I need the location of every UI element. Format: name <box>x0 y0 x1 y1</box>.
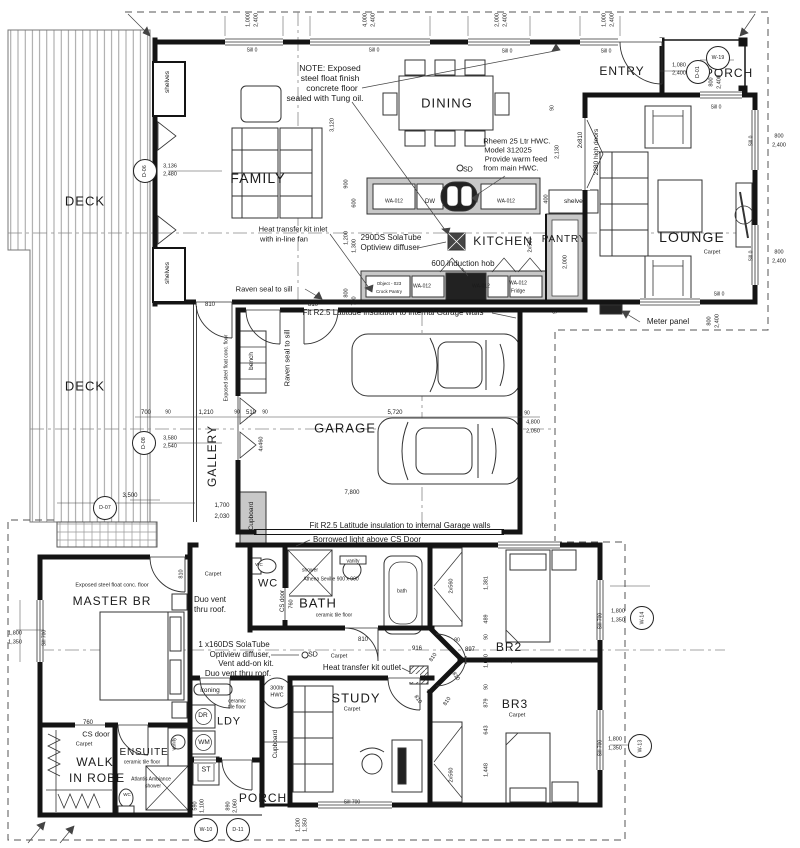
annotation-label: WA-012 <box>413 285 431 290</box>
tag-w-10: W-10 <box>194 818 218 842</box>
annotation-label: 3,500 <box>122 493 137 499</box>
room-ldy: LDY <box>217 717 241 728</box>
annotation-label: 90 <box>524 412 530 417</box>
annotation-label: 2,400 <box>610 13 616 27</box>
note-heat-inlet: Heat transfer kit inlet <box>259 225 328 233</box>
note-solatube: 290DS SolaTube <box>361 234 422 242</box>
annotation-label: shelves <box>165 71 172 93</box>
annotation-label: vanity <box>346 560 359 565</box>
annotation-label: thru roof. <box>194 606 226 614</box>
room-deck-lower: DECK <box>65 380 105 393</box>
tag-w-19: W-19 <box>706 46 730 70</box>
room-kitchen: KITCHEN <box>473 235 532 247</box>
annotation-label: ceramic tile floor <box>124 761 160 766</box>
note-solatube-2: 1 x160DS SolaTube <box>198 641 269 649</box>
annotation-label: Carpet <box>331 654 348 660</box>
annotation-label: steel float finish <box>301 74 360 83</box>
annotation-label: 4,000 <box>363 13 369 27</box>
annotation-label: Optiview diffuser, <box>210 651 271 659</box>
room-walk-in-robe-2: IN ROBE <box>69 772 125 784</box>
note-heat-outlet: Heat transfer kit outlet <box>323 664 401 672</box>
note-hob: 600 induction hob <box>431 260 494 268</box>
annotation-label: CS door <box>82 730 110 738</box>
annotation-label: WM <box>198 740 210 747</box>
annotation-label: bath <box>397 590 407 595</box>
annotation-label: 2,400 <box>503 13 509 27</box>
annotation-label: 900 <box>344 179 350 188</box>
annotation-label: sealed with Tung oil. <box>286 94 363 103</box>
annotation-label: Cupboard <box>273 730 280 759</box>
room-wc: WC <box>258 579 278 590</box>
annotation-label: 1,800 <box>611 609 625 615</box>
annotation-label: 590 <box>193 801 199 810</box>
room-walk-in-robe: WALK <box>76 756 113 768</box>
annotation-label: 897 <box>465 647 475 653</box>
annotation-label: 800 <box>344 288 350 297</box>
annotation-label: shower <box>145 785 161 790</box>
annotation-label: 2,400 <box>715 314 721 328</box>
annotation-label: shelves <box>165 262 172 284</box>
annotation-label: Fridge <box>511 290 525 295</box>
annotation-label: 1,448 <box>484 763 490 777</box>
tag-w-14: W-14 <box>630 606 654 630</box>
annotation-label: concrete floor <box>306 84 358 93</box>
annotation-label: 810 <box>450 672 460 683</box>
annotation-label: 1,350 <box>608 746 622 752</box>
note-meter-panel: Meter panel <box>647 318 689 326</box>
annotation-label: 800 <box>774 250 783 256</box>
annotation-label: Carpet <box>509 713 526 719</box>
annotation-label: 90 <box>454 639 460 644</box>
annotation-label: 2,400 <box>371 13 377 27</box>
annotation-label: Exposed steel float conc. floor <box>225 335 230 402</box>
annotation-label: Exposed steel float conc. floor <box>75 583 148 589</box>
annotation-label: from main HWC. <box>483 164 538 172</box>
annotation-label: Sill 0 <box>711 106 722 111</box>
annotation-label: 810 <box>429 653 439 664</box>
annotation-label: tile floor <box>228 706 246 711</box>
annotation-label: 916 <box>412 646 422 652</box>
annotation-label: vanity <box>173 737 178 750</box>
annotation-label: 1,350 <box>611 618 625 624</box>
annotation-label: 1,800 <box>608 737 622 743</box>
annotation-label: shelves <box>564 199 586 206</box>
room-deck-upper: DECK <box>65 195 105 208</box>
annotation-label: Sill 0 <box>750 136 755 147</box>
annotation-label: Borrowed light above CS Door <box>313 536 421 544</box>
annotation-label: 2,000 <box>495 13 501 27</box>
annotation-label: Athena Seville 900 x 900 <box>303 578 358 583</box>
annotation-label: 879 <box>484 698 490 707</box>
annotation-label: 1,200 <box>344 231 350 245</box>
tag-d-07: D-07 <box>93 496 117 520</box>
tag-w-13: W-13 <box>628 734 652 758</box>
annotation-label: WC <box>123 793 131 798</box>
annotation-label: 3,136 <box>163 164 177 170</box>
annotation-label: Cupboard <box>249 502 256 531</box>
annotation-label: 3,580 <box>163 436 177 442</box>
annotation-label: 90 <box>262 411 268 416</box>
annotation-label: Vent add-on kit. <box>218 660 274 668</box>
annotation-label: 90 <box>485 634 490 640</box>
annotation-label: 2,130 <box>555 145 561 159</box>
annotation-label: 90 <box>551 105 556 111</box>
annotation-label: WA-012 <box>472 285 490 290</box>
room-study: STUDY <box>331 692 380 705</box>
annotation-label: 800 <box>709 77 715 86</box>
annotation-label: ironing <box>200 688 220 695</box>
annotation-label: 2x560 <box>449 768 455 783</box>
note-hwc: Rheem 25 Ltr HWC. <box>483 137 551 145</box>
room-porch-bottom: PORCH <box>239 792 287 804</box>
annotation-label: Crock Pantry <box>376 290 402 295</box>
room-br3: BR3 <box>502 698 528 710</box>
note-insulation-top: Fit R2.5 Latitude insulation to internal… <box>303 309 484 317</box>
annotation-label: Carpet <box>344 707 361 713</box>
annotation-label: 3,120 <box>330 118 336 132</box>
annotation-label: 2,400 <box>772 143 786 149</box>
annotation-label: 1,000 <box>484 654 490 668</box>
annotation-label: 4,800 <box>526 420 540 426</box>
annotation-label: Provide warm feed <box>485 155 548 163</box>
annotation-label: shower <box>302 569 318 574</box>
annotation-label: Carpet <box>704 250 721 256</box>
tag-d-11: D-11 <box>226 818 250 842</box>
annotation-label: SD <box>308 652 318 659</box>
annotation-label: bench <box>249 352 256 370</box>
annotation-label: Sill 0 <box>369 49 380 54</box>
annotation-label: Duo vent thru roof. <box>205 670 271 678</box>
annotation-label: WA-012 <box>385 200 403 205</box>
annotation-label: 7,800 <box>344 490 359 496</box>
annotation-label: SD <box>463 167 473 174</box>
annotation-label: 810 <box>358 637 368 643</box>
annotation-label: 90 <box>165 411 171 416</box>
annotation-label: 800 <box>707 316 713 325</box>
annotation-label: 300ltr <box>270 686 284 692</box>
annotation-label: 2,400 <box>254 13 260 27</box>
annotation-label: 800 <box>774 134 783 140</box>
annotation-label: 890 <box>226 801 232 810</box>
annotation-label: 1,080 <box>672 63 686 69</box>
annotation-label: 2,480 <box>163 172 177 178</box>
annotation-label: Model 312025 <box>484 146 532 154</box>
annotation-label: 1,000 <box>246 13 252 27</box>
annotation-label: 90 <box>554 308 559 314</box>
annotation-label: Raven seal to sill <box>236 285 293 293</box>
annotation-label: Sill 700 <box>599 613 604 629</box>
annotation-label: 2x560 <box>528 238 534 253</box>
annotation-label: 2,060 <box>233 799 239 813</box>
floor-plan-sheet: FAMILYDININGKITCHENPANTRYLOUNGEENTRYPORC… <box>0 0 800 848</box>
labels-layer: FAMILYDININGKITCHENPANTRYLOUNGEENTRYPORC… <box>0 0 800 848</box>
annotation-label: Sill 0 <box>714 293 725 298</box>
annotation-label: 810 <box>412 695 422 706</box>
annotation-label: with in-line fan <box>260 235 308 243</box>
annotation-label: 600 <box>352 198 358 207</box>
annotation-label: 2,400 <box>772 259 786 265</box>
room-ensuite: ENSUITE <box>120 748 169 758</box>
annotation-label: Sill 0 <box>502 50 513 55</box>
room-master-br: MASTER BR <box>73 595 152 607</box>
annotation-label: WA-012 <box>509 282 527 287</box>
annotation-label: 1,200 <box>296 818 302 832</box>
room-family: FAMILY <box>230 171 285 185</box>
room-garage: GARAGE <box>314 422 376 435</box>
annotation-label: 2380 high doors <box>594 129 601 176</box>
annotation-label: DR <box>198 713 207 720</box>
annotation-label: 2,000 <box>563 255 569 269</box>
annotation-label: 90 <box>485 684 490 690</box>
annotation-label: ceramic tile floor <box>316 614 352 619</box>
annotation-label: 700 <box>352 296 358 305</box>
annotation-label: Optiview diffuser <box>361 244 420 252</box>
annotation-label: 2,030 <box>214 514 229 520</box>
annotation-label: 643 <box>484 725 490 734</box>
annotation-label: 2x560 <box>449 579 455 594</box>
annotation-label: Carpet <box>502 659 519 665</box>
annotation-label: Atlantis Ambiance <box>131 778 171 783</box>
annotation-label: DW <box>425 199 435 205</box>
annotation-label: 400 <box>544 194 550 203</box>
annotation-label: 510 <box>246 410 256 416</box>
annotation-label: 1,000 <box>602 13 608 27</box>
tag-d-06: D-06 <box>133 159 157 183</box>
annotation-label: 810 <box>443 697 453 708</box>
annotation-label: Sill 700 <box>344 801 360 806</box>
annotation-label: 1,100 <box>200 799 206 813</box>
annotation-label: 1,381 <box>484 576 490 590</box>
annotation-label: Sill 0 <box>750 251 755 262</box>
note-insulation-bottom: Fit R2.5 Latitude insulation to internal… <box>310 522 491 530</box>
annotation-label: 90 <box>234 411 240 416</box>
room-br2: BR2 <box>496 641 522 653</box>
annotation-label: Carpet <box>205 572 222 578</box>
annotation-label: 2,400 <box>672 71 686 77</box>
annotation-label: 700 <box>141 410 151 416</box>
annotation-label: 1,300 <box>352 239 358 253</box>
annotation-label: HWC <box>270 693 283 699</box>
annotation-label: sink <box>453 205 460 209</box>
room-dining: DINING <box>421 97 473 110</box>
room-entry: ENTRY <box>599 65 644 77</box>
annotation-label: 1,800 <box>8 631 22 637</box>
annotation-label: ST <box>202 767 211 774</box>
room-lounge: LOUNGE <box>659 230 725 244</box>
annotation-label: 1,700 <box>214 503 229 509</box>
annotation-label: Carpet <box>76 742 93 748</box>
room-bath: BATH <box>299 597 337 610</box>
annotation-label: 2x810 <box>578 132 584 148</box>
annotation-label: WC <box>255 563 263 568</box>
annotation-label: Sill 700 <box>599 740 604 756</box>
annotation-label: Object - 023 <box>377 282 402 287</box>
annotation-label: 1,210 <box>198 410 213 416</box>
annotation-label: CS door <box>280 590 286 612</box>
annotation-label: Sill 0 <box>601 50 612 55</box>
annotation-label: 1,350 <box>8 640 22 646</box>
tag-d-08: D-08 <box>132 431 156 455</box>
annotation-label: 760 <box>289 599 295 608</box>
annotation-label: 5,720 <box>387 410 402 416</box>
annotation-label: WA-012 <box>497 200 515 205</box>
annotation-label: Duo vent <box>194 596 226 604</box>
annotation-label: Sill 0 <box>247 49 258 54</box>
annotation-label: 810 <box>308 302 318 308</box>
room-pantry: PANTRY <box>542 235 586 245</box>
annotation-label: 2,540 <box>163 444 177 450</box>
annotation-label: 810 <box>205 302 215 308</box>
annotation-label: 4x460 <box>259 437 265 452</box>
annotation-label: 1,350 <box>303 818 309 832</box>
annotation-label: 489 <box>484 614 490 623</box>
note-floor-finish: NOTE: Exposed <box>299 64 360 73</box>
annotation-label: 760 <box>83 720 93 726</box>
annotation-label: 810 <box>179 569 185 578</box>
room-gallery: GALLERY <box>206 425 218 487</box>
annotation-label: 2,400 <box>717 75 723 89</box>
annotation-label: 2,050 <box>526 429 540 435</box>
annotation-label: Raven seal to sill <box>283 330 291 387</box>
annotation-label: Sill 700 <box>43 630 48 646</box>
